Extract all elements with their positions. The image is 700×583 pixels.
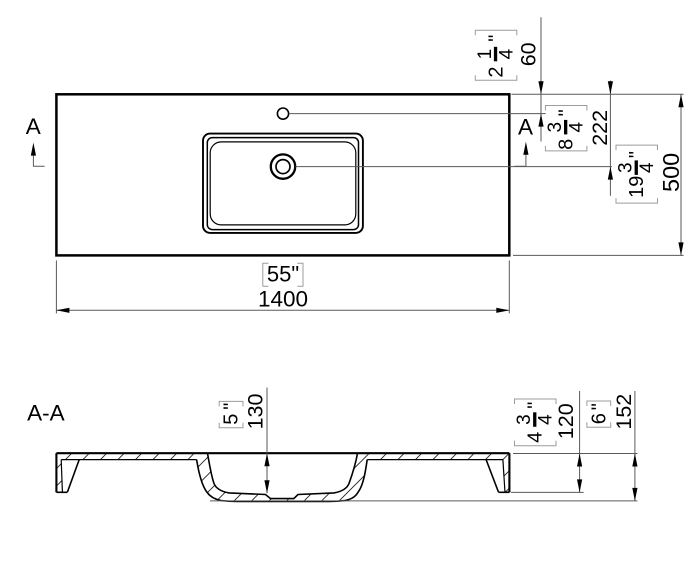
svg-text:19: 19	[626, 176, 648, 198]
svg-text:A-A: A-A	[27, 400, 65, 425]
svg-text:8: 8	[555, 139, 577, 150]
svg-text:3: 3	[545, 122, 566, 133]
svg-text:4: 4	[566, 121, 587, 132]
svg-text:4: 4	[637, 162, 658, 173]
svg-text:4: 4	[525, 432, 547, 443]
svg-text:3: 3	[514, 414, 535, 425]
svg-text:": "	[555, 109, 577, 116]
svg-text:222: 222	[588, 110, 612, 146]
svg-text:": "	[525, 402, 547, 409]
svg-text:2: 2	[485, 66, 507, 77]
svg-text:152: 152	[612, 394, 636, 430]
svg-text:55": 55"	[267, 261, 299, 286]
svg-text:1: 1	[475, 49, 496, 60]
svg-text:": "	[221, 403, 243, 410]
svg-text:5: 5	[221, 414, 243, 425]
svg-text:120: 120	[554, 403, 578, 439]
svg-text:3: 3	[616, 162, 637, 173]
svg-text:6: 6	[588, 413, 610, 424]
svg-text:1400: 1400	[258, 287, 308, 312]
svg-text:": "	[588, 403, 610, 410]
svg-text:A: A	[518, 115, 533, 140]
svg-text:60: 60	[517, 42, 541, 66]
svg-text:": "	[485, 35, 507, 42]
svg-text:": "	[626, 151, 648, 158]
svg-text:130: 130	[244, 393, 268, 429]
svg-text:500: 500	[658, 153, 684, 192]
svg-text:4: 4	[496, 48, 517, 59]
svg-text:A: A	[26, 114, 41, 139]
